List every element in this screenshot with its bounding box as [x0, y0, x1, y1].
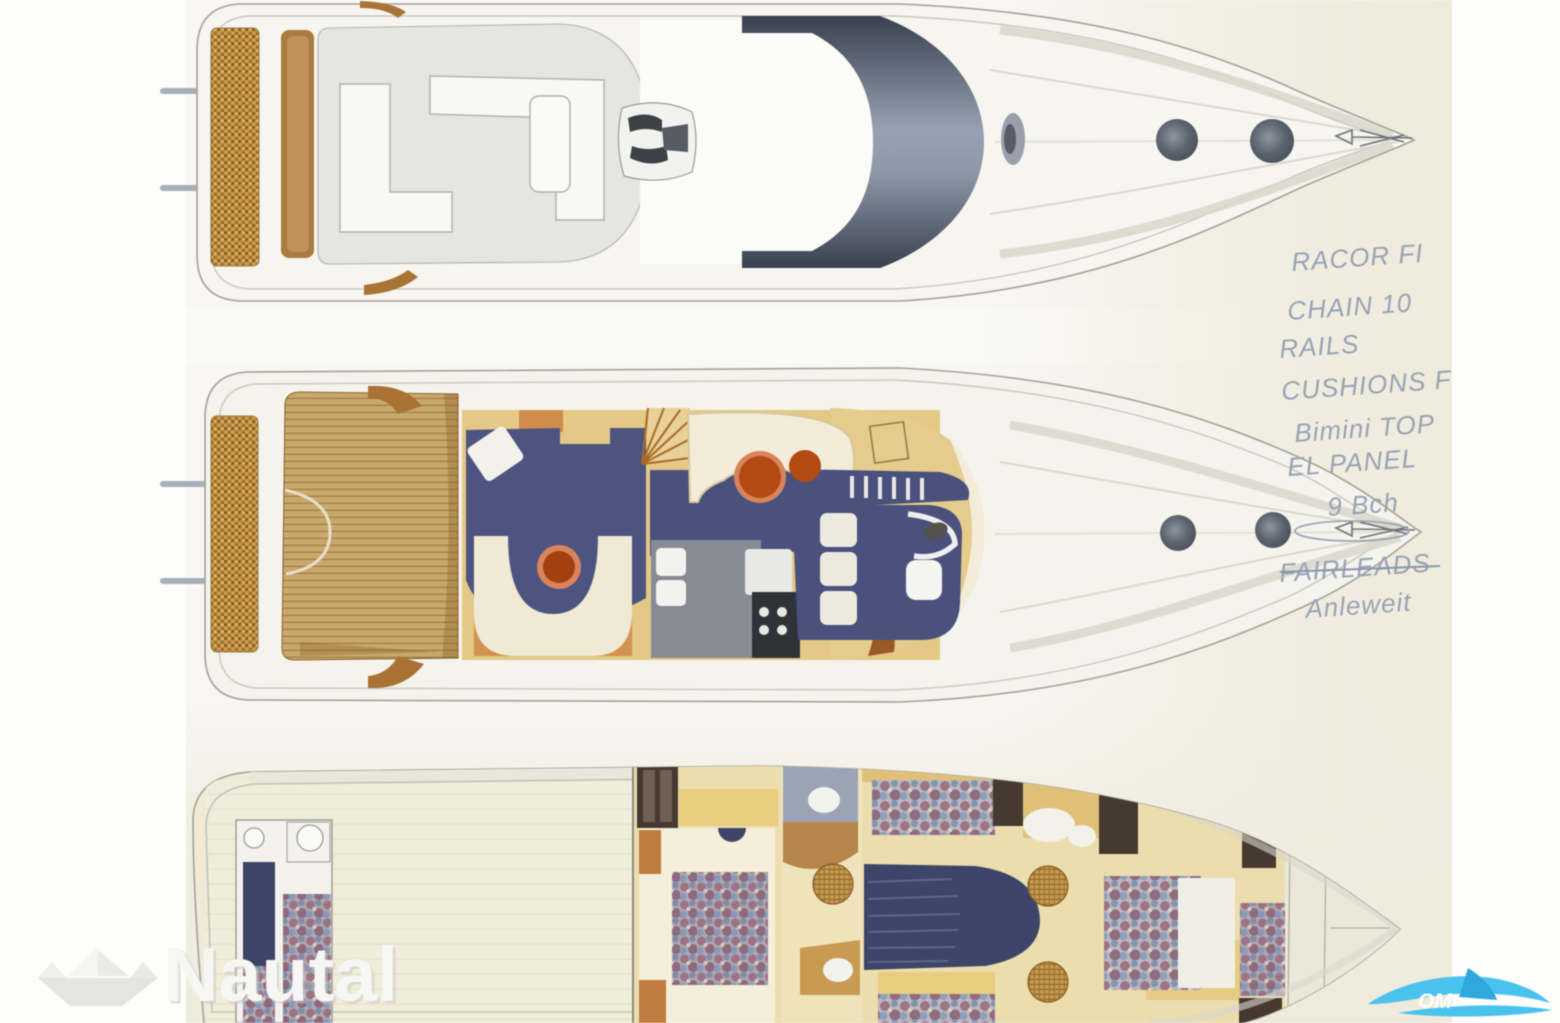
svg-text:Nautal: Nautal — [163, 932, 398, 1018]
svg-text:RAILS: RAILS — [1278, 328, 1360, 364]
svg-text:9 Bch: 9 Bch — [1326, 487, 1399, 522]
svg-text:OM: OM — [1418, 990, 1452, 1013]
